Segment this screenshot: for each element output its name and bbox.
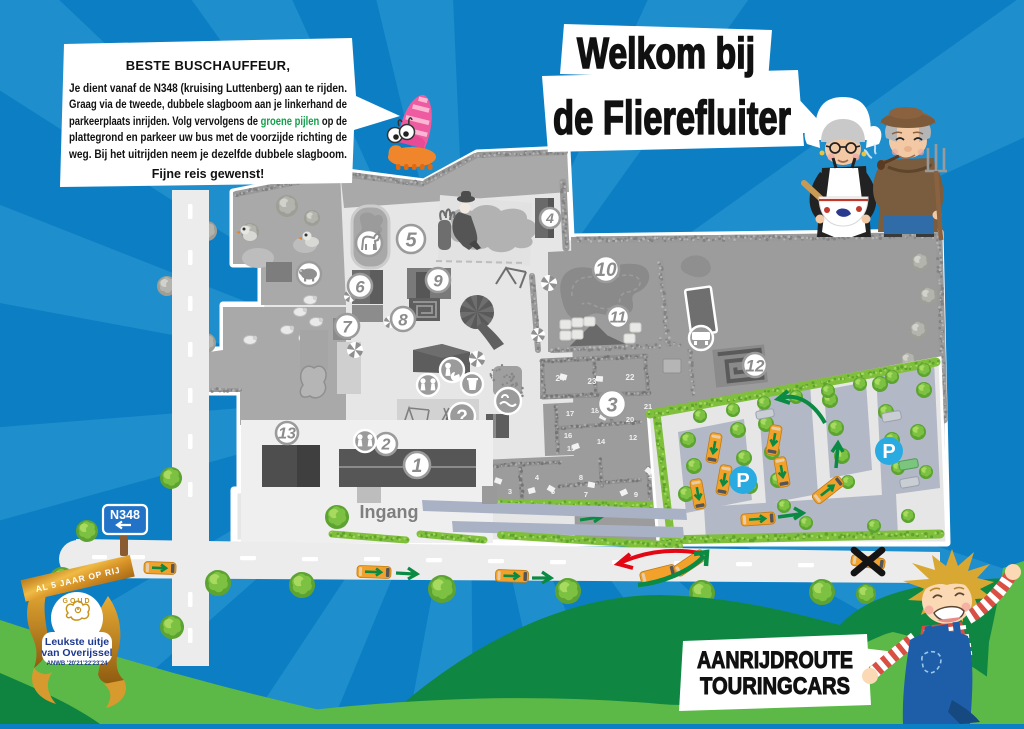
svg-text:12: 12: [629, 433, 637, 442]
svg-text:22: 22: [626, 373, 635, 382]
svg-text:Welkom bij: Welkom bij: [577, 29, 755, 78]
svg-text:Je dient vanaf de N348 (kruisi: Je dient vanaf de N348 (kruising Luttenb…: [69, 81, 347, 95]
svg-text:8: 8: [398, 310, 408, 329]
svg-text:9: 9: [433, 271, 443, 290]
svg-text:BESTE BUSCHAUFFEUR,: BESTE BUSCHAUFFEUR,: [126, 58, 291, 73]
svg-text:4: 4: [545, 210, 554, 226]
svg-text:3: 3: [508, 487, 512, 496]
svg-text:de Flierefluiter: de Flierefluiter: [553, 91, 791, 144]
svg-text:20: 20: [626, 415, 634, 424]
svg-text:7: 7: [584, 490, 588, 499]
svg-text:Graag via de tweede, dubbele s: Graag via de tweede, dubbele slagboom aa…: [69, 97, 347, 111]
svg-text:plattegrond en parkeer uw bus: plattegrond en parkeer uw bus met de voo…: [69, 130, 347, 144]
svg-text:13: 13: [278, 426, 296, 443]
svg-text:8: 8: [579, 473, 583, 482]
svg-text:16: 16: [564, 431, 572, 440]
svg-text:12: 12: [746, 356, 765, 375]
svg-text:7: 7: [342, 317, 353, 336]
svg-text:Ingang: Ingang: [360, 502, 419, 522]
svg-text:P: P: [736, 470, 749, 492]
svg-text:weg. Bij het uitrijden neem je: weg. Bij het uitrijden neem je dezelfde …: [68, 147, 347, 161]
svg-text:10: 10: [595, 260, 617, 281]
svg-text:6: 6: [355, 277, 365, 296]
svg-text:17: 17: [566, 409, 574, 418]
svg-text:ANWB '20'21'22'23'24: ANWB '20'21'22'23'24: [47, 661, 108, 667]
svg-text:23: 23: [588, 377, 597, 386]
svg-text:N348: N348: [110, 508, 140, 522]
svg-text:Fijne reis gewenst!: Fijne reis gewenst!: [152, 167, 265, 181]
svg-text:11: 11: [610, 310, 627, 327]
svg-text:TOURINGCARS: TOURINGCARS: [700, 673, 850, 700]
svg-text:parkeerplaats inrijden. Volg v: parkeerplaats inrijden. Volg vervolgens …: [69, 114, 347, 128]
svg-text:AANRIJDROUTE: AANRIJDROUTE: [697, 647, 853, 674]
svg-text:5: 5: [405, 229, 417, 251]
svg-text:P: P: [882, 441, 895, 463]
svg-text:3: 3: [606, 394, 617, 416]
svg-text:9: 9: [634, 490, 638, 499]
svg-text:2: 2: [381, 437, 391, 454]
svg-text:14: 14: [597, 437, 606, 446]
svg-text:van Overijssel: van Overijssel: [41, 647, 112, 659]
svg-text:1: 1: [412, 456, 423, 477]
